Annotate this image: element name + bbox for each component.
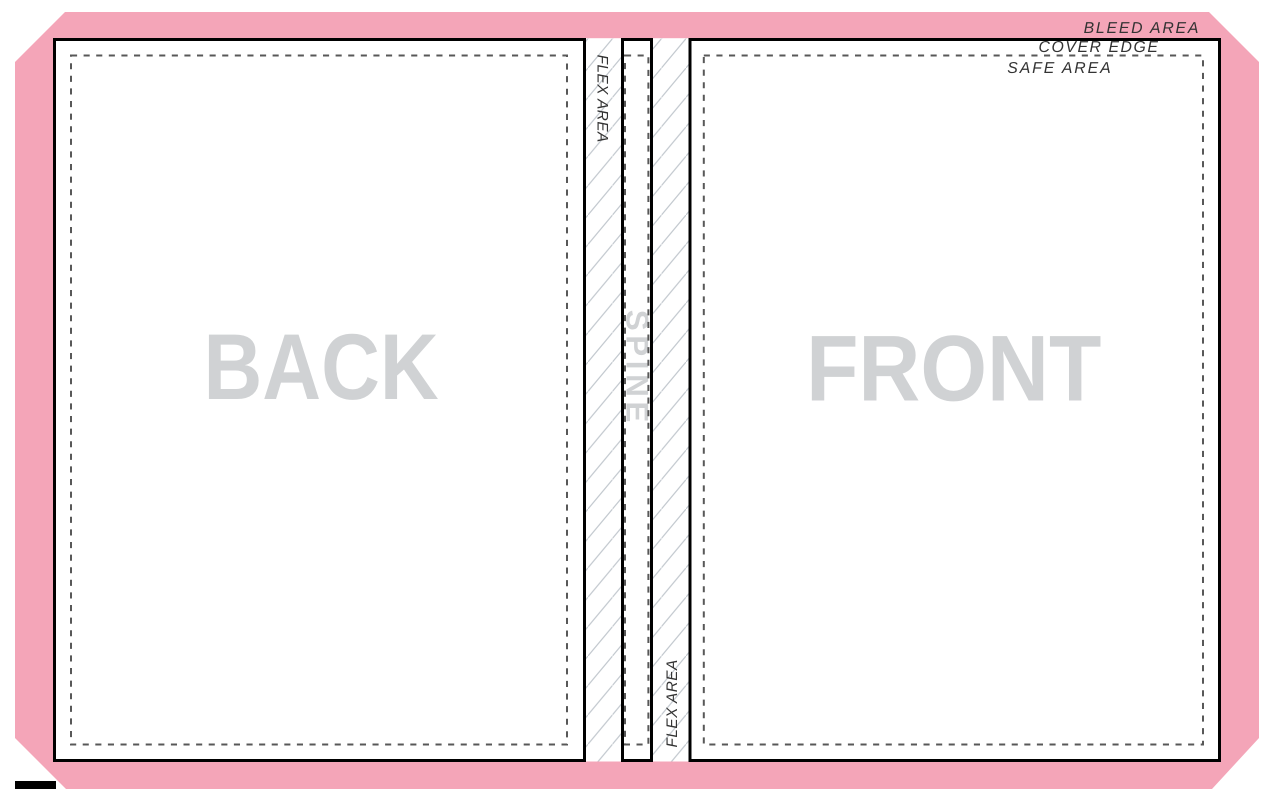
- svg-text:BACK: BACK: [203, 314, 438, 419]
- svg-text:FLEX AREA: FLEX AREA: [594, 55, 611, 143]
- svg-text:COVER EDGE: COVER EDGE: [1039, 39, 1160, 56]
- svg-text:SAFE AREA: SAFE AREA: [1007, 60, 1112, 77]
- svg-text:FRONT: FRONT: [806, 316, 1101, 421]
- svg-text:FLEX AREA: FLEX AREA: [664, 659, 681, 747]
- svg-text:BLEED AREA: BLEED AREA: [1084, 20, 1201, 37]
